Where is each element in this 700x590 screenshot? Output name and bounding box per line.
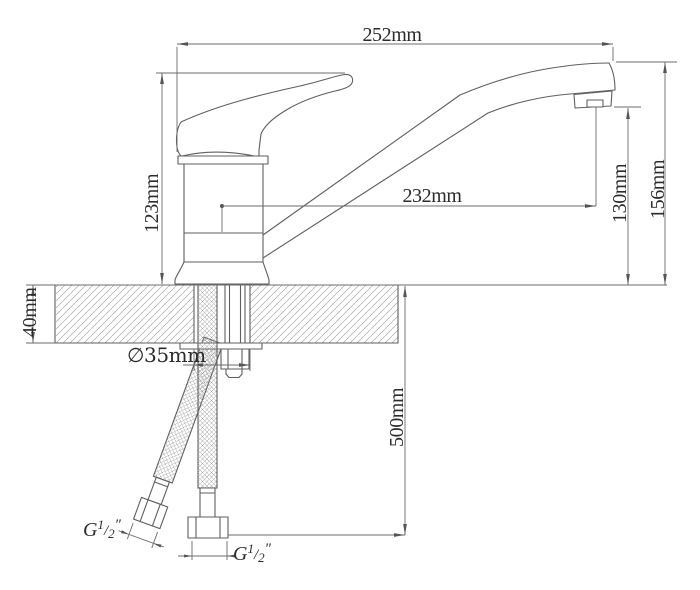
hose-right-ferrule <box>200 488 215 517</box>
dim-label-spout-reach: 232mm <box>402 185 462 207</box>
dim-label-hole-diameter: ∅35mm <box>127 343 206 367</box>
thread-label-right: G1/2″ <box>233 541 272 565</box>
spout-lower-edge <box>263 90 615 258</box>
dim-label-total-height: 156mm <box>647 159 669 219</box>
dim-label-body-height: 123mm <box>141 173 163 233</box>
stud-tip <box>226 369 242 378</box>
faucet-handle <box>177 74 353 157</box>
body-cylinder <box>184 164 263 262</box>
drawing-canvas: 252mm 123mm 232mm 130mm 156mm 40mm ∅35mm… <box>0 0 700 590</box>
dim-label-outlet-height: 130mm <box>609 163 631 223</box>
thread-left-prime: ″ <box>115 517 122 533</box>
countertop-hatch-left <box>56 285 194 343</box>
dim-label-hose-length: 500mm <box>386 387 408 447</box>
countertop-hatch-right <box>250 285 398 343</box>
spout-aerator <box>587 100 603 107</box>
hose-right-braid <box>198 285 217 488</box>
faucet-technical-drawing: 252mm 123mm 232mm 130mm 156mm 40mm ∅35mm… <box>0 0 700 590</box>
thread-label-left: G1/2″ <box>83 517 122 541</box>
countertop-section <box>55 285 398 343</box>
thread-right-extension-lines <box>192 541 227 560</box>
spout-tip-edge <box>609 63 615 90</box>
faucet-body <box>175 63 615 284</box>
cartridge-cap-ring <box>178 156 268 164</box>
thread-left-g: G <box>83 519 98 541</box>
thread-right-prime: ″ <box>265 541 272 557</box>
dim-label-countertop: 40mm <box>19 287 41 337</box>
dim-label-total-length: 252mm <box>362 24 422 46</box>
thread-right-g: G <box>233 543 248 565</box>
hose-right-nut <box>188 517 228 538</box>
threaded-stud <box>225 285 245 343</box>
mounting-nut <box>221 349 249 378</box>
faucet-base <box>175 262 269 284</box>
